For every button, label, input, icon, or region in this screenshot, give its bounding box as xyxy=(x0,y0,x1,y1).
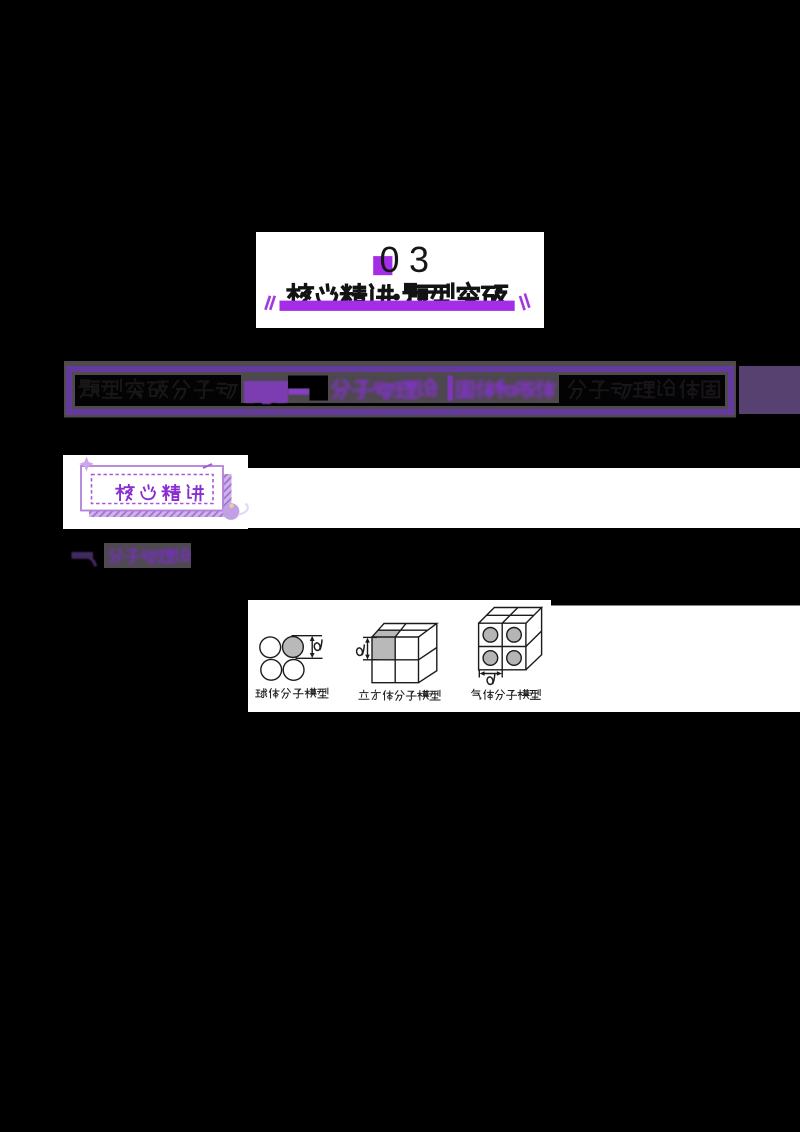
svg-text:03: 03 xyxy=(380,239,439,280)
